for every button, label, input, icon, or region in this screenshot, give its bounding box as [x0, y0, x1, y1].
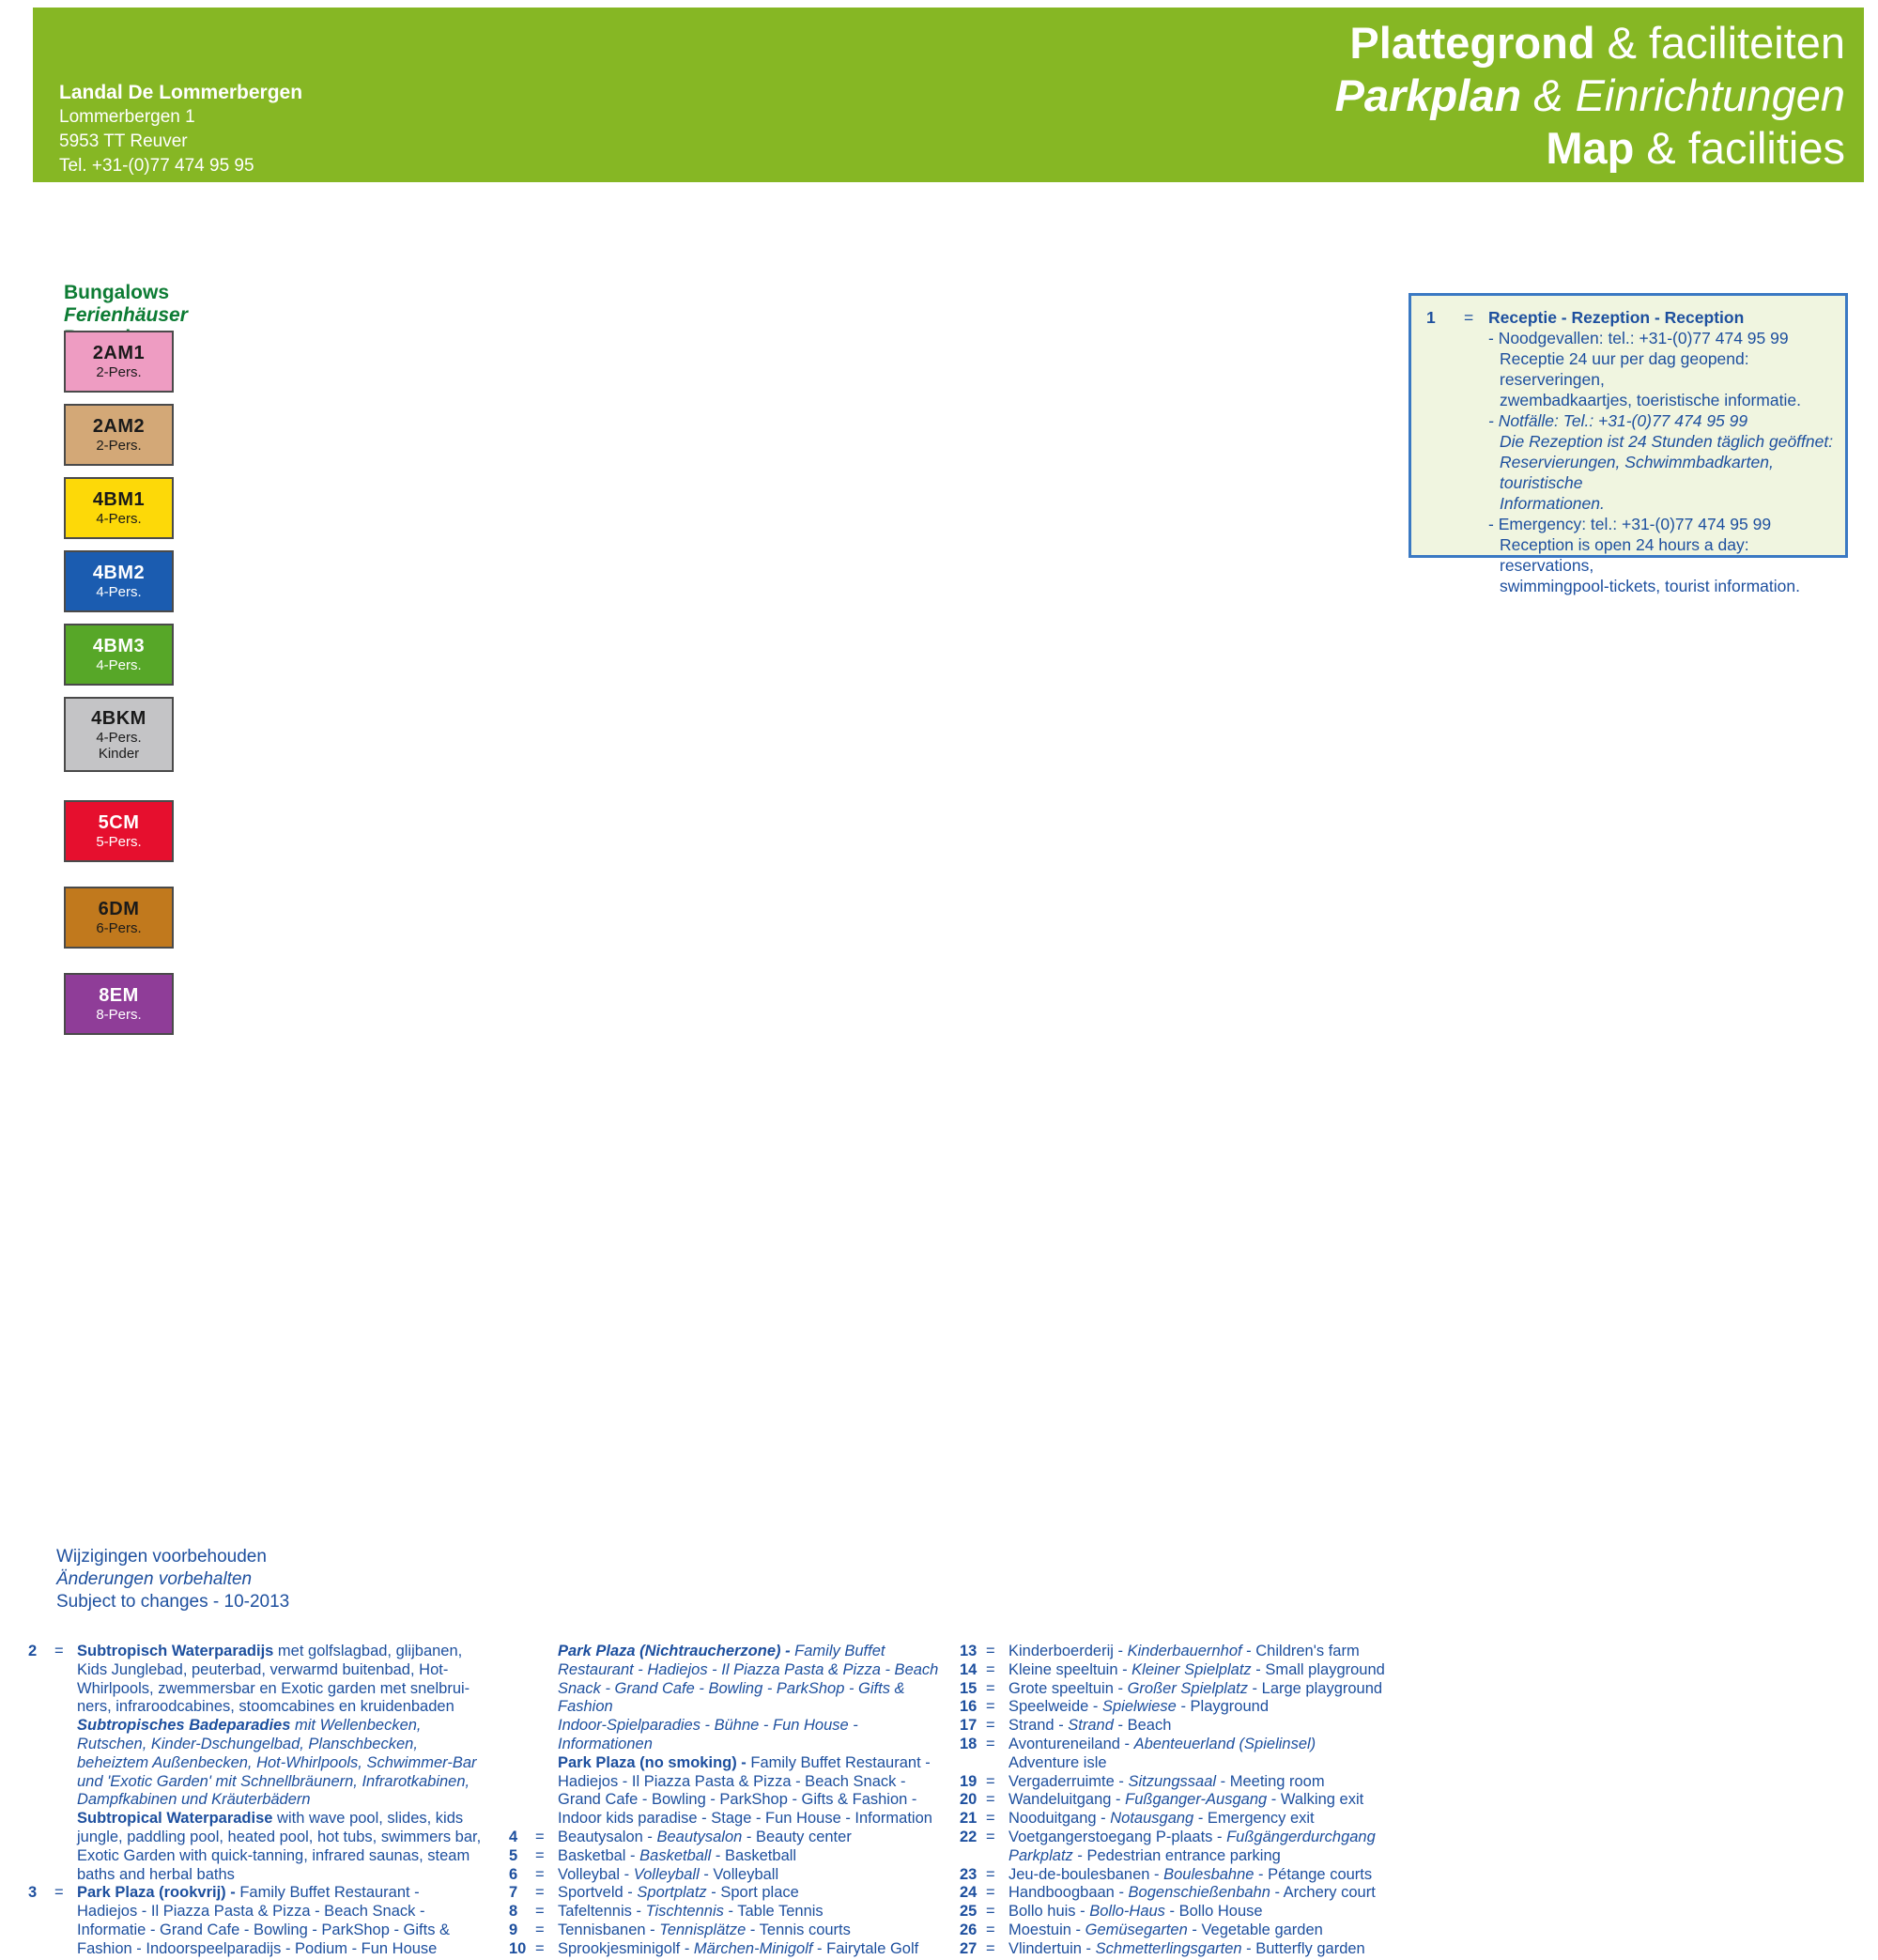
bungalow-type-5CM: 5CM5-Pers. — [64, 800, 174, 862]
heading-nl: Bungalows — [64, 282, 186, 304]
heading-de: Ferienhäuser — [64, 304, 186, 327]
address-line3: Tel. +31-(0)77 474 95 95 — [59, 154, 302, 178]
reception-line: Reception is open 24 hours a day: reserv… — [1488, 534, 1838, 576]
reception-eq: = — [1464, 307, 1488, 328]
reception-line: Receptie 24 uur per dag geopend: reserve… — [1488, 348, 1838, 390]
legend-item-27: 27=Vlindertuin - Schmetterlingsgarten - … — [960, 1940, 1403, 1959]
legend-column-1: 2=Subtropisch Waterparadijs met golfslag… — [28, 1643, 505, 1959]
legend-item-14: 14=Kleine speeltuin - Kleiner Spielplatz… — [960, 1661, 1403, 1680]
legend-item-13: 13=Kinderboerderij - Kinderbauernhof - C… — [960, 1643, 1403, 1661]
legend-column-2: Park Plaza (Nichtraucherzone) - Family B… — [509, 1643, 954, 1960]
legend-item-4: 4=Beautysalon - Beautysalon - Beauty cen… — [509, 1829, 954, 1847]
legend-item-2: 2=Subtropisch Waterparadijs met golfslag… — [28, 1643, 505, 1884]
page: Landal De Lommerbergen Lommerbergen 1 59… — [0, 0, 1878, 1960]
reception-line: Informationen. — [1488, 493, 1838, 514]
reception-line: zwembadkaartjes, toeristische informatie… — [1488, 390, 1838, 410]
header: Landal De Lommerbergen Lommerbergen 1 59… — [33, 8, 1864, 182]
bungalow-type-4BM1: 4BM14-Pers. — [64, 477, 174, 539]
legend-item-25: 25=Bollo huis - Bollo-Haus - Bollo House — [960, 1903, 1403, 1921]
resort-name: Landal De Lommerbergen — [59, 81, 302, 105]
reception-number: 1 — [1426, 307, 1464, 328]
legend-item-9: 9=Tennisbanen - Tennisplätze - Tennis co… — [509, 1921, 954, 1940]
legend-item-15: 15=Grote speeltuin - Großer Spielplatz -… — [960, 1680, 1403, 1699]
legend-item-3: 3=Park Plaza (rookvrij) - Family Buffet … — [28, 1884, 505, 1958]
note-nl: Wijzigingen voorbehouden — [56, 1546, 289, 1568]
bungalow-type-4BM2: 4BM24-Pers. — [64, 550, 174, 612]
legend-item-26: 26=Moestuin - Gemüsegarten - Vegetable g… — [960, 1921, 1403, 1940]
legend-item-21: 21=Nooduitgang - Notausgang - Emergency … — [960, 1810, 1403, 1829]
legend-item-7: 7=Sportveld - Sportplatz - Sport place — [509, 1884, 954, 1903]
title-de-rest: & Einrichtungen — [1521, 70, 1845, 120]
legend-item-22: 22=Voetgangerstoegang P-plaats - Fußgäng… — [960, 1829, 1403, 1866]
bungalow-legend: Bungalows Ferienhäuser Bungalows: 2AM12-… — [64, 282, 186, 349]
legend-item-24: 24=Handboogbaan - Bogenschießenbahn - Ar… — [960, 1884, 1403, 1903]
bungalow-type-4BKM: 4BKM4-Pers.Kinder — [64, 697, 174, 772]
legend-item-6: 6=Volleybal - Volleyball - Volleyball — [509, 1866, 954, 1885]
legend-item-16: 16=Speelweide - Spielwiese - Playground — [960, 1698, 1403, 1717]
address-line1: Lommerbergen 1 — [59, 105, 302, 130]
reception-line: Die Rezeption ist 24 Stunden täglich geö… — [1488, 431, 1838, 452]
reception-info-box: 1 = Receptie - Rezeption - Reception - N… — [1408, 293, 1848, 558]
resort-address: Landal De Lommerbergen Lommerbergen 1 59… — [59, 81, 302, 178]
legend-item-23: 23=Jeu-de-boulesbanen - Boulesbahne - Pé… — [960, 1866, 1403, 1885]
title-en-bold: Map — [1546, 123, 1634, 173]
bungalow-type-8EM: 8EM8-Pers. — [64, 973, 174, 1035]
subject-to-changes-note: Wijzigingen voorbehouden Änderungen vorb… — [56, 1546, 289, 1613]
legend-item-18: 18=Avontureneiland - Abenteuerland (Spie… — [960, 1736, 1403, 1773]
legend-column-3: 13=Kinderboerderij - Kinderbauernhof - C… — [960, 1643, 1403, 1959]
note-de: Änderungen vorbehalten — [56, 1568, 289, 1591]
bungalow-type-4BM3: 4BM34-Pers. — [64, 624, 174, 686]
title-nl-bold: Plattegrond — [1349, 18, 1594, 68]
reception-title: Receptie - Rezeption - Reception — [1488, 307, 1744, 328]
reception-line: Reservierungen, Schwimmbadkarten, touris… — [1488, 452, 1838, 493]
legend-item-19: 19=Vergaderruimte - Sitzungssaal - Meeti… — [960, 1773, 1403, 1792]
legend-item-8: 8=Tafeltennis - Tischtennis - Table Tenn… — [509, 1903, 954, 1921]
title-nl-rest: & faciliteiten — [1595, 18, 1845, 68]
legend-item-10: 10=Sprookjesminigolf - Märchen-Minigolf … — [509, 1940, 954, 1959]
reception-line: - Notfälle: Tel.: +31-(0)77 474 95 99 — [1488, 410, 1838, 431]
reception-line: swimmingpool-tickets, tourist informatio… — [1488, 576, 1838, 596]
bungalow-type-6DM: 6DM6-Pers. — [64, 887, 174, 949]
title-de-bold: Parkplan — [1335, 70, 1522, 120]
address-line2: 5953 TT Reuver — [59, 130, 302, 154]
bungalow-type-2AM2: 2AM22-Pers. — [64, 404, 174, 466]
bungalow-type-2AM1: 2AM12-Pers. — [64, 331, 174, 393]
legend-item-park-plaza: Park Plaza (Nichtraucherzone) - Family B… — [509, 1643, 954, 1829]
legend-item-5: 5=Basketbal - Basketball - Basketball — [509, 1847, 954, 1866]
page-title: Plattegrond & faciliteiten Parkplan & Ei… — [1335, 17, 1845, 175]
legend-item-20: 20=Wandeluitgang - Fußganger-Ausgang - W… — [960, 1791, 1403, 1810]
note-en: Subject to changes - 10-2013 — [56, 1591, 289, 1613]
title-en-rest: & facilities — [1634, 123, 1845, 173]
legend-item-17: 17=Strand - Strand - Beach — [960, 1717, 1403, 1736]
reception-line: - Noodgevallen: tel.: +31-(0)77 474 95 9… — [1488, 328, 1838, 348]
reception-line: - Emergency: tel.: +31-(0)77 474 95 99 — [1488, 514, 1838, 534]
